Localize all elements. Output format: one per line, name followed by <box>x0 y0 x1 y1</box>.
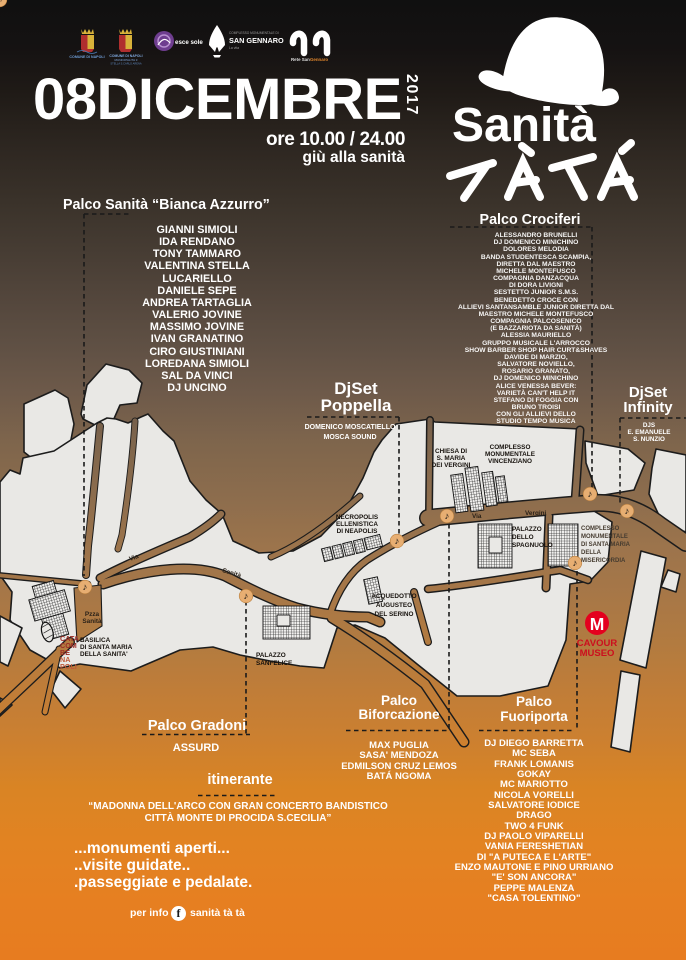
svg-text:COMUNE DI NAPOLI: COMUNE DI NAPOLI <box>69 55 104 59</box>
svg-text:DELLA SANITA': DELLA SANITA' <box>80 651 128 658</box>
svg-text:Sanità: Sanità <box>82 618 102 625</box>
svg-text:La vita: La vita <box>229 46 239 50</box>
svg-text:ACQUEDOTTO: ACQUEDOTTO <box>371 593 416 600</box>
svg-text:VINCENZIANO: VINCENZIANO <box>488 458 532 465</box>
svg-text:PALAZZO: PALAZZO <box>512 526 542 533</box>
svg-text:Via: Via <box>472 513 482 520</box>
svg-text:DI NEAPOLIS: DI NEAPOLIS <box>337 528 379 535</box>
svg-text:NECROPOLIS: NECROPOLIS <box>336 514 379 521</box>
svg-text:Gennaro: Gennaro <box>310 57 328 62</box>
svg-text:S. MARIA: S. MARIA <box>437 455 466 462</box>
svg-text:STELLA S.CARLO ARENA: STELLA S.CARLO ARENA <box>110 62 141 66</box>
svg-text:AUGUSTEO: AUGUSTEO <box>376 602 412 609</box>
svg-text:DELLA: DELLA <box>581 550 602 556</box>
svg-text:DEI VERGINI: DEI VERGINI <box>432 462 471 469</box>
svg-text:SAN GENNARO: SAN GENNARO <box>229 36 284 45</box>
svg-text:PALAZZO: PALAZZO <box>256 652 286 659</box>
svg-text:SANFELICE: SANFELICE <box>256 660 293 667</box>
svg-text:esce sole: esce sole <box>175 39 203 46</box>
svg-text:MISERICORDIA: MISERICORDIA <box>581 558 626 564</box>
svg-text:COMPLESSO: COMPLESSO <box>581 526 620 532</box>
svg-text:Sanità: Sanità <box>221 567 242 579</box>
svg-text:BASILICA: BASILICA <box>80 637 111 644</box>
svg-text:MONUMENTALE: MONUMENTALE <box>485 451 536 458</box>
svg-text:ELLENISTICA: ELLENISTICA <box>336 521 378 528</box>
svg-text:Via: Via <box>128 553 140 563</box>
svg-text:POLI: POLI <box>60 662 77 671</box>
svg-text:COMPLESSO MONUMENTALE DI: COMPLESSO MONUMENTALE DI <box>229 31 279 35</box>
svg-text:Rete San: Rete San <box>291 57 310 62</box>
svg-text:SPAGNUOLO: SPAGNUOLO <box>512 542 553 549</box>
svg-text:DELLO: DELLO <box>512 534 534 541</box>
svg-text:MONUMENTALE: MONUMENTALE <box>581 534 628 540</box>
svg-text:DI SANTA MARIA: DI SANTA MARIA <box>581 542 631 548</box>
svg-text:Pzza: Pzza <box>85 611 100 618</box>
svg-text:Vergini: Vergini <box>525 510 547 517</box>
svg-text:COMPLESSO: COMPLESSO <box>490 444 531 451</box>
svg-text:MUNICIPALITA 3: MUNICIPALITA 3 <box>115 58 138 62</box>
svg-text:DEL SERINO: DEL SERINO <box>375 611 414 618</box>
svg-text:MUSEO: MUSEO <box>580 648 615 659</box>
svg-text:CHIESA DI: CHIESA DI <box>435 448 467 455</box>
svg-text:DI SANTA MARIA: DI SANTA MARIA <box>80 644 133 651</box>
